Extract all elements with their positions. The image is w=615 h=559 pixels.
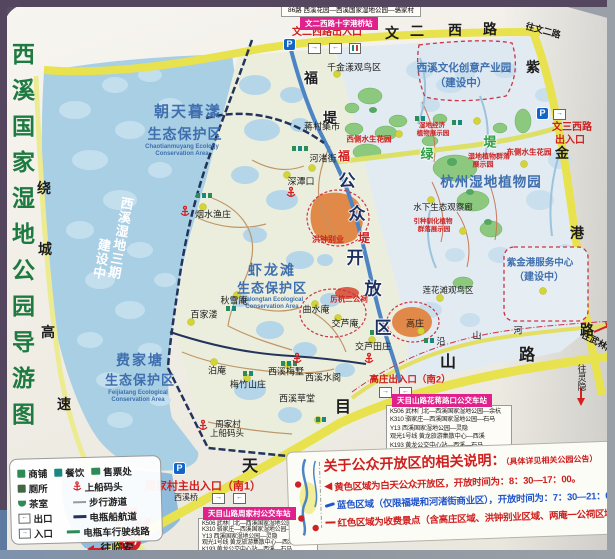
road-label-wenerxilu-1: 二 (410, 24, 424, 38)
legend-dining: 餐饮 (54, 465, 84, 480)
spot-xixishuige: 西溪水阁 (305, 374, 341, 383)
zone-xialongtan-en1: Xialongtan Ecological (241, 297, 303, 303)
gate-icon-north-in: → (308, 43, 321, 54)
zone-label-open-1: 众 (349, 206, 366, 223)
legend-dock-label: 上船码头 (84, 479, 122, 494)
spot-qushuian: 曲水庵 (302, 306, 329, 315)
shop-icon (17, 469, 25, 477)
legend-exit: ←出口 (18, 510, 66, 525)
notice-text: 关于公众开放区的相关说明：（具体详见相关公园公告） 黄色区域为白天公众开放区，开… (323, 446, 611, 541)
spot-shidijingji-1: 湿地经济 (419, 123, 445, 130)
spot-hongzhongbieye: 洪钟别业 (312, 236, 344, 244)
spot-qiuxuean: 秋雪庵 (220, 297, 247, 306)
zone-zhiwuyuan: 杭州湿地植物园 (440, 175, 542, 189)
toilet-icon (18, 484, 26, 492)
parking-icon-north: P (284, 39, 295, 50)
gate-icon-gaozhuang-in: → (379, 387, 392, 398)
road-label-tianmushan-3: 路 (519, 348, 535, 364)
zone-fuwu-1: 紫金港服务中心 (507, 258, 574, 268)
frame-left (0, 0, 7, 512)
spot-lianhuatan: 莲花滩观鸟区 (422, 286, 473, 295)
zone-feijiatang-1: 费家塘 (116, 353, 164, 367)
red-dash-icon (325, 521, 335, 523)
road-label-tianmushan-2: 山 (440, 355, 456, 371)
dining-icon (54, 468, 62, 476)
spot-xice-garden: 西侧水生花园 (347, 135, 392, 143)
zone-chanyeyuan-2: （建设中） (435, 78, 488, 89)
bus-route: 观光1号线 黄龙旅游集散中心—西溪 (390, 433, 508, 441)
spot-hezhujie: 河渚街 (309, 155, 336, 164)
trail-line-icon (73, 500, 86, 502)
legend-ticket-label: 售票处 (103, 463, 132, 478)
gate-icon-south-in: → (212, 493, 225, 504)
road-label-raocheng-0: 绕 (37, 183, 51, 197)
gate-icon-east: → (553, 109, 566, 120)
entrance-zhoujiacun: 周家村主出入口（南1） (145, 482, 261, 493)
legend-shops-label: 商铺 (28, 466, 47, 480)
zone-chaotianmuyang-en1: Chaotianmuyang Ecology (145, 144, 219, 150)
spot-shidiqunluo-1: 湿地植物群落 (468, 154, 510, 161)
road-label-yanshanhe-0: 沿 (436, 338, 445, 347)
legend-boat-label: 电瓶船航道 (89, 508, 137, 523)
zone-chaotianmuyang-2: 生态保护区 (148, 127, 223, 141)
bus86-text: 86路 西溪花园—西溪国家湿地公园—骆家村 (288, 7, 414, 14)
anchor-icon (73, 481, 82, 492)
station-huajiang: 天目山路花蒋路口公交车站 (392, 394, 492, 407)
gate-icon-north-out: ← (329, 43, 342, 54)
road-label-raocheng-2: 高 (41, 327, 55, 341)
direction-lingyin: 往灵隐 (577, 364, 586, 391)
cart-route-icon (67, 530, 80, 533)
zone-chanyeyuan-1: 西溪文化创意产业园 (417, 63, 512, 74)
exit-gate-icon: ← (18, 513, 30, 523)
arrow-left-icon (324, 482, 332, 490)
road-label-zijingang-1: 金 (555, 146, 569, 160)
legend-trail: 步行游道 (73, 493, 127, 508)
open-area-notice: 关于公众开放区的相关说明：（具体详见相关公园公告） 黄色区域为白天公众开放区，开… (286, 441, 615, 546)
station-zhoujiacun: 天目山路周家村公交车站 (203, 507, 296, 520)
zone-xialongtan-1: 虾龙滩 (248, 263, 296, 277)
ticket-icon (91, 468, 100, 475)
spot-shentankou: 深潭口 (287, 178, 314, 187)
zone-feijiatang-en1: Feijiatang Ecological (108, 390, 168, 396)
spot-qianjinyang: 千金漾观鸟区 (327, 64, 381, 73)
road-label-wenerxilu-2: 西 (448, 23, 462, 37)
notice-subtitle: （具体详见相关公园公告） (505, 454, 597, 466)
station-shizigangqiao: 文二西路十字港桥站 (300, 17, 378, 30)
zone-feijiatang-en2: Conservation Area (111, 397, 164, 403)
restroom-icon-north (349, 43, 361, 54)
entrance-wensanxilu-2: 出入口 (555, 136, 585, 146)
legend-cart-label: 电瓶车行驶线路 (83, 523, 150, 539)
spot-xixicaotang: 西溪草堂 (279, 395, 315, 404)
legend-entry: →入口 (19, 525, 61, 540)
bus-route: K310 骆家庄—西溪国家湿地公园—石马 (390, 416, 508, 424)
notice-title: 关于公众开放区的相关说明： (323, 451, 505, 473)
road-label-wenerxilu-3: 路 (483, 22, 497, 36)
spot-shidiqunluo-2: 展示园 (473, 162, 494, 169)
spot-jiaolutianzhuang: 交芦田庄 (355, 343, 391, 352)
spot-xiximeishu: 西溪梅墅 (268, 368, 304, 377)
legend-row: →入口 电瓶车行驶线路 (19, 522, 157, 541)
zone-feijiatang-2: 生态保护区 (105, 374, 175, 387)
station-zhoujiacun-text: 天目山路周家村公交车站 (208, 509, 291, 518)
road-label-zijingang-2: 港 (570, 226, 584, 240)
legend-boat: 电瓶船航道 (73, 508, 137, 524)
spot-jiaoluan: 交芦庵 (331, 320, 358, 329)
legend-cart: 电瓶车行驶线路 (67, 523, 150, 539)
map-legend: 商铺 餐饮 售票处 厕所 上船码头 茶室 步行游道 ←出口 电瓶船航道 →入口 … (9, 455, 163, 545)
legend-toilet-label: 厕所 (28, 481, 47, 495)
road-label-zijingang-0: 紫 (526, 60, 540, 74)
spot-lihangergongci: 厉杭二公祠 (330, 295, 368, 303)
legend-trail-label: 步行游道 (89, 493, 127, 508)
spot-baijialou: 百家溇 (190, 311, 217, 320)
spot-gaozhuang: 高庄 (406, 320, 424, 329)
station-huajiang-text: 天目山路花蒋路口公交车站 (397, 396, 487, 405)
road-label-raocheng-1: 城 (38, 244, 52, 258)
zone-label-open-2: 开 (347, 250, 364, 267)
tea-icon (18, 500, 26, 506)
spot-meizhushanzhuang: 梅竹山庄 (230, 381, 266, 390)
entry-gate-icon: → (19, 528, 31, 538)
road-label-yanshanhe-2: 河 (513, 327, 522, 336)
spot-dongce-garden: 东侧水生花园 (507, 148, 552, 156)
road-label-lvdi-1: 堤 (483, 136, 496, 149)
road-label-fudi-red-0: 福 (338, 150, 350, 162)
spot-yinzhong-2: 群落展示园 (418, 227, 451, 234)
gate-icon-south-out: ← (233, 493, 246, 504)
zone-chaotianmuyang-en2: Conservation Area (155, 151, 208, 157)
zone-label-open-0: 公 (339, 173, 356, 190)
zone-xialongtan-en2: Conservation Area (245, 304, 298, 310)
blue-line-icon (325, 502, 335, 508)
legend-tea-label: 茶室 (29, 495, 48, 509)
parking-icon-south: P (174, 463, 185, 474)
legend-exit-label: 出口 (33, 510, 52, 524)
legend-shops: 商铺 (17, 466, 47, 481)
zone-chaotianmuyang-1: 朝天暮漾 (154, 105, 222, 120)
legend-toilet: 厕所 (17, 480, 65, 495)
legend-ticket: 售票处 (91, 463, 132, 478)
notice-minimap (289, 456, 324, 541)
wetland-park-map-photo: 西溪国家湿地公园导游图 绕 城 高 速 西溪湿地三期 建设中 文 二 西 路 文… (0, 0, 615, 559)
road-label-tianmushan-0: 天 (242, 459, 258, 475)
spot-boan: 泊庵 (208, 367, 226, 376)
entrance-gaozhuang: 高庄出入口（南2） (369, 375, 450, 385)
road-label-lvdi-0: 绿 (420, 148, 433, 161)
station-shizigangqiao-text: 文二西路十字港桥站 (305, 19, 373, 28)
legend-dock: 上船码头 (72, 479, 122, 494)
road-label-tianmushan-1: 目 (335, 400, 351, 416)
spot-jiangcunjishi: 蒋村集市 (304, 123, 340, 132)
road-label-raocheng-3: 速 (57, 399, 71, 413)
zone-fuwu-2: （建设中） (514, 273, 564, 283)
road-label-fudi-red-1: 堤 (358, 232, 370, 244)
entrance-wensanxilu-1: 文三西路 (552, 123, 592, 133)
zone-xialongtan-2: 生态保护区 (237, 282, 307, 295)
spot-shangchuanmatou: 上船码头 (210, 429, 244, 438)
spot-shuixia: 水下生态观察廊 (413, 203, 473, 212)
frame-top (0, 0, 615, 7)
legend-tea: 茶室 (18, 495, 66, 510)
spot-yinzhong-1: 引种驯化植物 (414, 219, 453, 226)
road-label-wenerxilu-0: 文 (385, 26, 399, 40)
road-label-yanshanhe-1: 山 (472, 332, 481, 341)
legend-entry-label: 入口 (34, 525, 53, 539)
frame-right (607, 0, 615, 559)
spot-yanshuiyuzhuang: 烟水渔庄 (195, 211, 231, 220)
spot-xixiqiao: 西溪桥 (174, 494, 198, 502)
frame-bottom (0, 550, 615, 559)
road-label-fudi-0: 福 (304, 71, 318, 85)
legend-dining-label: 餐饮 (65, 465, 84, 479)
zone-label-open-4: 区 (375, 320, 392, 337)
bus-route: Y13 西溪国家湿地公园—灵隐 (390, 425, 508, 433)
spot-shidijingji-2: 植物展示园 (417, 131, 450, 138)
map-title: 西溪国家湿地公园导游图 (10, 42, 33, 438)
boat-channel-icon (73, 515, 86, 518)
parking-icon-east: P (537, 108, 548, 119)
